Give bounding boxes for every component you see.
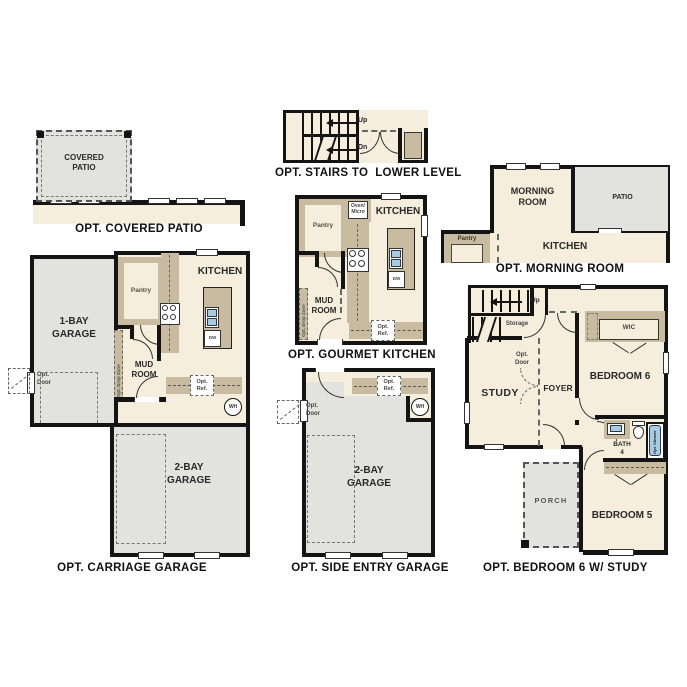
window: [176, 198, 198, 204]
caption-side-entry-garage: OPT. SIDE ENTRY GARAGE: [290, 562, 450, 574]
parking-dash: [40, 372, 98, 423]
patio-label: PATIO: [595, 194, 650, 203]
sink-basin: [391, 250, 401, 258]
porch-post: [521, 540, 529, 548]
bedroom6-label: BEDROOM 6: [577, 371, 663, 384]
up-arrow-head: [326, 119, 333, 127]
pantry-label: Pantry: [118, 287, 164, 295]
wall: [157, 325, 161, 361]
one-bay-garage-label: 1-BAY GARAGE: [34, 316, 114, 341]
window: [194, 552, 220, 559]
two-bay-garage-label: 2-BAY GARAGE: [146, 462, 232, 487]
wall-cased-opening: [404, 132, 422, 159]
burner: [349, 260, 356, 267]
caption-morning-room: OPT. MORNING ROOM: [460, 263, 660, 275]
wic-dashed-cell: [587, 313, 598, 340]
window: [580, 284, 596, 290]
closet-dash: [606, 467, 664, 468]
wic-label: WIC: [599, 324, 659, 332]
window: [138, 552, 164, 559]
mud-room-label: MUD ROOM: [303, 296, 345, 316]
window: [608, 549, 634, 556]
caption-carriage-garage: OPT. CARRIAGE GARAGE: [52, 562, 212, 574]
wall: [398, 128, 402, 163]
wall: [341, 251, 345, 289]
kitchen-label: KITCHEN: [370, 206, 426, 219]
covered-patio-label: COVERED PATIO: [46, 153, 122, 173]
pantry-label: Pantry: [444, 236, 490, 244]
dishwasher-label: DW: [388, 276, 405, 282]
wall: [130, 325, 134, 339]
up-arrow-head: [490, 298, 497, 306]
burner: [170, 305, 176, 311]
window: [484, 444, 504, 450]
up-label: Up: [358, 117, 374, 126]
caption-stairs: OPT. STAIRS TO LOWER LEVEL: [275, 167, 435, 179]
bath4-label: BATH 4: [606, 441, 638, 457]
up-arrow-line: [332, 122, 356, 124]
floor-plan-options-sheet: COVERED PATIO OPT. COVERED PATIO Up Dn O…: [0, 0, 687, 687]
wall: [398, 160, 428, 163]
bedroom5-label: BEDROOM 5: [579, 510, 665, 523]
patio-post: [37, 131, 44, 138]
window: [196, 249, 218, 256]
counter-run: [347, 222, 369, 323]
sink-basin: [610, 425, 622, 432]
two-bay-garage-label: 2-BAY GARAGE: [326, 465, 412, 490]
wall: [468, 285, 548, 288]
sink-basin: [207, 309, 217, 317]
up-label: Up: [531, 297, 547, 305]
dn-arrow-head: [326, 146, 333, 154]
wall: [465, 445, 543, 449]
caption-gourmet-kitchen: OPT. GOURMET KITCHEN: [288, 349, 433, 361]
kitchen-label: KITCHEN: [192, 266, 248, 279]
burner: [349, 250, 356, 257]
closet-shelf: [604, 462, 666, 474]
burner: [358, 250, 365, 257]
wall: [579, 447, 583, 552]
mud-room-label: MUD ROOM: [122, 360, 166, 380]
counter-dash: [357, 224, 358, 321]
opt-ref-label: Opt. Ref.: [377, 379, 401, 393]
drop-zone-label: Opt. Drop Zone: [116, 364, 121, 397]
morning-room-label: MORNING ROOM: [495, 186, 570, 209]
window: [464, 402, 470, 424]
window: [506, 163, 526, 170]
window: [325, 552, 351, 559]
opt-door-label: Opt. Door: [306, 403, 328, 418]
wall: [666, 233, 670, 263]
porch-label: PORCH: [523, 496, 579, 505]
dashed-opening: [497, 234, 499, 263]
burner: [170, 314, 176, 320]
sink-basin: [391, 259, 401, 267]
window: [663, 352, 669, 374]
water-heater: WH: [224, 398, 242, 416]
wall: [424, 128, 428, 163]
opt-ref-label: Opt. Ref.: [190, 379, 214, 393]
pantry-label: Pantry: [299, 222, 347, 230]
up-arrow-line: [496, 301, 522, 303]
wall: [465, 338, 469, 449]
foyer-label: FOYER: [539, 383, 577, 394]
caption-bedroom6-study: OPT. BEDROOM 6 W/ STUDY: [483, 562, 645, 574]
opt-door-label: Opt. Door: [508, 352, 536, 367]
oven-micro-label: Oven/ Micro: [348, 203, 368, 216]
wall: [315, 251, 319, 267]
sink-basin: [207, 318, 217, 326]
dn-arrow-line: [332, 149, 356, 151]
dishwasher-label: DW: [204, 335, 221, 341]
opt-ref-label: Opt. Ref.: [371, 324, 395, 338]
study-label: STUDY: [472, 387, 528, 400]
window: [381, 193, 401, 200]
window: [382, 552, 408, 559]
wall: [406, 418, 434, 422]
burner: [162, 314, 168, 320]
window: [204, 198, 226, 204]
opt-shower-label: Opt. Shower: [652, 430, 657, 454]
window: [148, 198, 170, 204]
water-heater: WH: [411, 398, 429, 416]
parking-dash: [116, 434, 166, 544]
burner: [162, 305, 168, 311]
caption-covered-patio: OPT. COVERED PATIO: [33, 223, 245, 235]
window: [540, 163, 560, 170]
patio-post: [124, 131, 131, 138]
pantry-interior: [451, 244, 483, 263]
burner: [358, 260, 365, 267]
wall: [595, 415, 668, 419]
kitchen-label: KITCHEN: [510, 241, 620, 254]
wall: [545, 285, 668, 289]
